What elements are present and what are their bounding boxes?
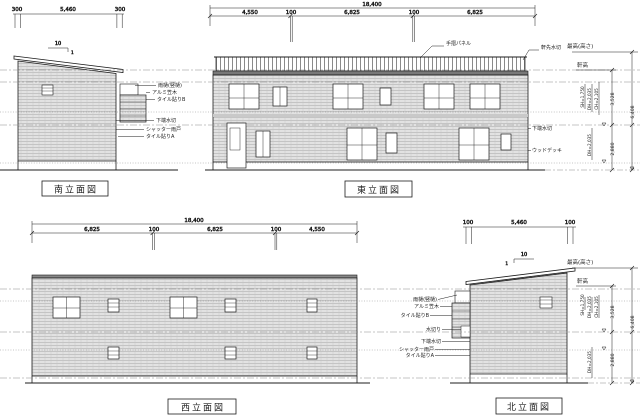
north-callout-shutter: シャッター雨戸 [399,346,434,353]
cad-canvas: 300 5,460 300 10 1 雨樋(竪樋) アルミ笠木 タイル貼りB 下… [0,0,640,417]
south-vent-window [42,85,53,95]
north-dim-center: 5,460 [511,220,527,226]
east-win-dim-4: DH=2,035 [587,134,592,156]
south-slope-rise: 1 [71,50,74,55]
west-elevation-building [32,275,357,383]
east-upper-height: 3,528 [610,92,616,105]
north-callout-tile-a: タイル貼りA [406,352,435,359]
east-eave-label: 軒高 [577,61,589,69]
east-win-dim-1: SH=1,750 [580,86,585,108]
north-title: 北立面図 [507,401,551,413]
south-dim-left: 300 [12,7,23,13]
east-win-dim-2: DH=2,035 [587,88,592,110]
west-dim-seg5: 4,550 [309,227,325,233]
east-lower-height: 2,880 [610,142,616,155]
south-callout-gutter: 雨樋(竪樋) [158,82,182,89]
north-lower-height: 2,880 [610,353,616,366]
west-title: 西立面図 [181,402,225,414]
north-callout-flashing: 下端水切 [421,338,441,345]
north-eave-label: 軒高 [577,277,589,285]
east-title: 東立面図 [357,184,401,196]
elevation-drawing-sheet: 300 5,460 300 10 1 雨樋(竪樋) アルミ笠木 タイル貼りB 下… [0,0,640,417]
west-dim-total: 18,400 [184,218,204,224]
north-win-dim-1: SH=1,750 [580,294,585,316]
north-total-height: 6,408 [630,315,636,328]
west-wall [32,278,357,376]
east-win-dim-3: CH=2,105 [594,88,599,110]
east-dim-seg4: 100 [409,10,420,16]
north-callouts: 雨樋(竪樋) アルミ笠木 タイル貼りB 水切り 下端水切 シャッター雨戸 タイル… [399,296,441,359]
south-dim-center: 5,460 [60,7,76,13]
north-callout-drip: 水切り [426,326,441,333]
south-elevation-building [14,56,146,170]
south-callout-coping: アルミ笠木 [152,89,177,96]
north-height-dimensions: 最高(高さ) 軒高 6,408 3,528 2,880 SH=1,750 DH=… [567,258,638,385]
east-max-height-label: 最高(高さ) [567,42,593,50]
east-height-dimensions: 最高(高さ) 軒高 6,408 3,528 2,880 SH=1,750 DH=… [567,42,638,172]
level-marker [602,329,634,383]
west-dim-seg2: 100 [149,227,160,233]
south-callout-shutter: シャッター雨戸 [146,126,181,133]
south-slope-run: 10 [55,41,61,47]
north-callout-gutter: 雨樋(竪樋) [413,296,437,303]
north-callout-tile-b: タイル貼りB [401,312,430,319]
north-upper-height: 3,528 [610,305,616,318]
south-callout-flashing: 下端水切 [156,117,176,124]
south-title: 南立面図 [54,184,98,196]
south-dim-right: 300 [115,7,126,13]
west-dim-seg3: 6,825 [207,227,223,233]
east-callout-deck: ウッドデッキ [532,147,562,154]
north-elevation-building [452,268,575,383]
east-floor-band [213,114,528,117]
west-dim-seg1: 6,825 [84,227,100,233]
north-vent-window [540,297,552,308]
west-coping [32,275,357,278]
south-windows [42,85,53,95]
north-slope-run: 10 [521,252,527,258]
north-win-dim-4: DH=2,035 [587,351,592,373]
west-dimensions: 18,400 6,825 100 6,825 100 4,550 [30,218,359,250]
east-callout-flashing: 下端水切 [532,125,552,132]
west-dim-seg4: 100 [271,227,282,233]
east-dim-seg5: 6,825 [467,10,483,16]
north-win-dim-2: DH=2,035 [587,296,592,318]
east-callout-eave-flashing: 軒先水切 [541,44,561,51]
north-dim-right: 100 [565,220,576,226]
north-wall [470,273,567,374]
north-rooftop-box [455,291,470,303]
north-callout-coping: アルミ笠木 [414,303,439,310]
east-dim-seg1: 4,550 [242,10,258,16]
south-callouts: 雨樋(竪樋) アルミ笠木 タイル貼りB 下端水切 シャッター雨戸 タイル貼りA [146,82,186,140]
east-dim-seg2: 100 [286,10,297,16]
east-dim-total: 18,400 [362,2,382,8]
east-roof-railing [216,57,525,71]
north-windows [540,297,552,308]
south-side-block [120,95,146,122]
south-callout-tile-b: タイル貼りB [157,96,186,103]
south-wall [18,61,116,161]
north-dim-left: 100 [463,220,474,226]
north-win-dim-3: CH=2,105 [594,296,599,318]
east-roof-slab [213,71,528,75]
east-total-height: 6,408 [630,105,636,118]
north-slope-rise: 1 [505,261,508,266]
east-dim-seg3: 6,825 [344,10,360,16]
east-callout-railing-panel: 手摺パネル [446,40,471,47]
north-max-height-label: 最高(高さ) [567,258,593,266]
south-callout-tile-a: タイル貼りA [146,133,175,140]
